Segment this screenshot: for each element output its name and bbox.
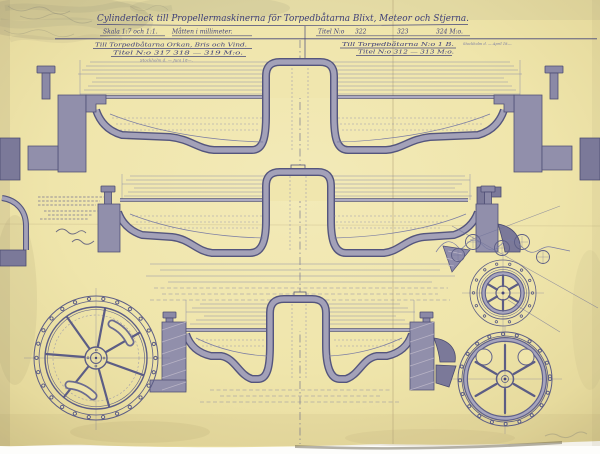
titel-label: Titel N:o (318, 29, 345, 36)
right-titel-note: Titel N:o 312 — 313 M:o. (358, 50, 454, 56)
stud-bolt-head (101, 186, 115, 192)
blueprint-photo: Cylinderlock till Propellermaskinerna fö… (0, 0, 600, 454)
stud-bolt-shaft (550, 73, 558, 99)
titel-number-1: 322 (355, 29, 367, 36)
stud-bolt-head (420, 312, 433, 318)
right-date-note: Stockholm d. — April 18—. (463, 42, 512, 46)
stud-bolt-head (481, 186, 495, 192)
titel-number-3: 324 M:o. (436, 29, 463, 36)
stud-bolt-shaft (42, 73, 50, 99)
stud-bolt-head (545, 66, 563, 73)
right-ships-note: Till Torpedbåtarna N:o 1 B. (342, 41, 454, 48)
stud-bolt-head (37, 66, 55, 73)
drawing-sheet: Cylinderlock till Propellermaskinerna fö… (0, 0, 600, 454)
units-note: Måtten i millimeter. (171, 29, 232, 36)
left-titel-note: Titel N:o 317 318 — 319 M:o. (113, 51, 244, 57)
titel-number-2: 323 (397, 29, 409, 36)
left-ships-note: Till Torpedbåtarna Orkan, Bris och Vind. (95, 42, 247, 49)
scale-note: Skala 1:7 och 1:1. (103, 29, 158, 36)
stud-bolt-head (163, 312, 176, 318)
sheet-title: Cylinderlock till Propellermaskinerna fö… (97, 12, 469, 24)
